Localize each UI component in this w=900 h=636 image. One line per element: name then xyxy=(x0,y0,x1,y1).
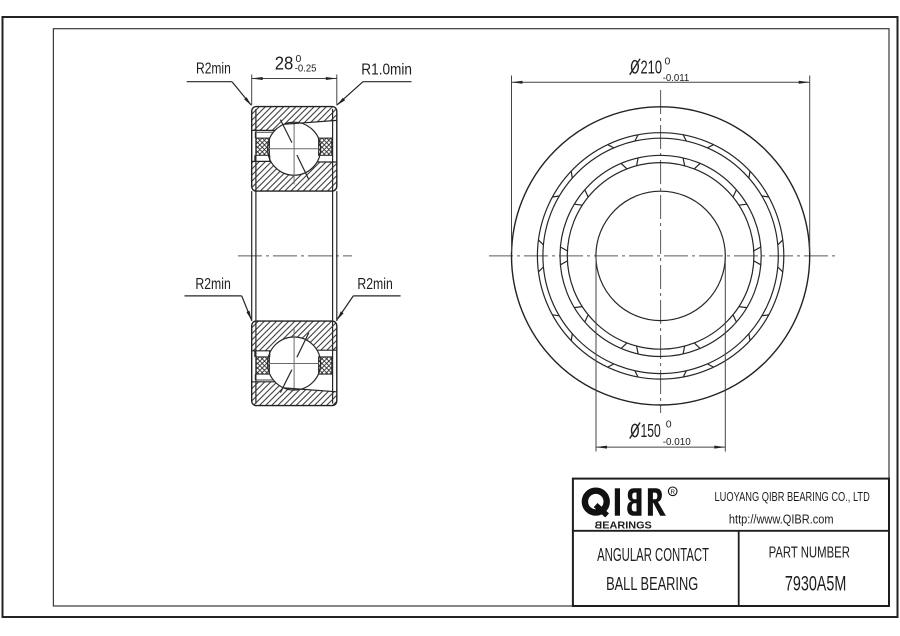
svg-text:R2min: R2min xyxy=(357,276,392,293)
svg-text:PART NUMBER: PART NUMBER xyxy=(769,545,850,562)
svg-text:210: 210 xyxy=(641,57,663,77)
svg-text:http://www.QIBR.com: http://www.QIBR.com xyxy=(729,512,834,527)
svg-text:R: R xyxy=(671,489,676,496)
svg-text:B: B xyxy=(594,519,602,531)
svg-text:R2min: R2min xyxy=(195,276,230,293)
svg-text:0: 0 xyxy=(665,56,671,68)
svg-text:LUOYANG QIBR BEARING CO., LTD: LUOYANG QIBR BEARING CO., LTD xyxy=(715,489,870,504)
svg-text:7930A5M: 7930A5M xyxy=(785,572,846,596)
svg-text:R1.0min: R1.0min xyxy=(361,62,412,79)
svg-text:R2min: R2min xyxy=(196,61,231,78)
svg-text:28: 28 xyxy=(275,54,294,74)
svg-text:ANGULAR CONTACT: ANGULAR CONTACT xyxy=(597,545,709,565)
svg-text:0: 0 xyxy=(666,419,672,431)
svg-text:BALL BEARING: BALL BEARING xyxy=(606,574,698,594)
svg-text:-0.011: -0.011 xyxy=(663,72,690,84)
svg-text:150: 150 xyxy=(641,421,661,441)
svg-text:EARINGS: EARINGS xyxy=(602,519,652,531)
svg-text:-0.25: -0.25 xyxy=(295,63,317,75)
svg-text:-0.010: -0.010 xyxy=(663,436,691,448)
